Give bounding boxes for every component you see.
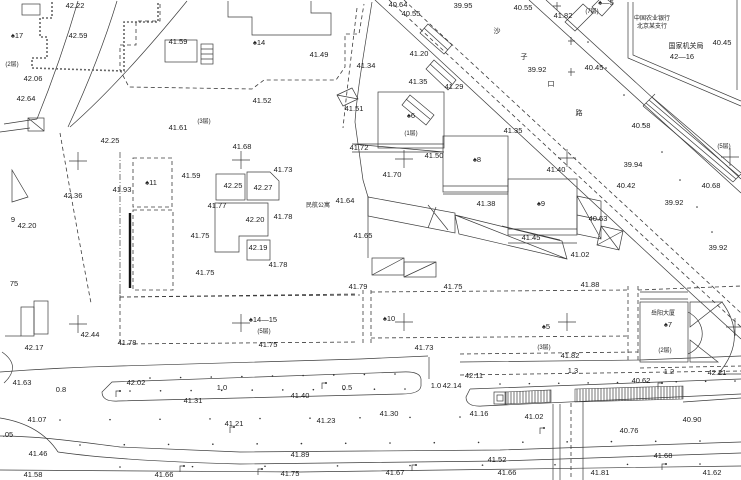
point-symbol [566, 441, 568, 443]
elevation-label: 41.38 [477, 199, 496, 208]
lamp-icon [325, 382, 327, 384]
tower-building [640, 292, 741, 374]
elevation-label: 41.63 [13, 378, 32, 387]
elevation-label: 0.8 [56, 385, 66, 394]
point-symbol [256, 443, 258, 445]
survey-map-page: 42.2240.6440.5539.9540.5541.82♠—5(7层)中国农… [0, 0, 741, 480]
point-symbol [522, 441, 524, 443]
point-symbol [168, 444, 170, 446]
elevation-label: 41.75 [191, 231, 210, 240]
lamp-icon [322, 383, 326, 389]
elevation-label: 41.82 [554, 11, 573, 20]
elevation-label: 41.70 [383, 170, 402, 179]
elevation-label: 42.02 [127, 378, 146, 387]
point-symbol [123, 444, 125, 446]
elevation-label: 41.31 [184, 396, 203, 405]
point-symbol [160, 390, 162, 392]
elevation-label: 42.06 [24, 74, 43, 83]
elevation-label: ♠9 [537, 199, 545, 208]
point-symbol [409, 465, 411, 467]
elevation-label: 40.42 [617, 181, 636, 190]
elevation-label: 42.27 [254, 183, 273, 192]
map-text-label: (1层) [404, 130, 417, 137]
elevation-label: 41.67 [386, 468, 405, 477]
map-text-label: 岳阳大厦 [651, 309, 675, 317]
elevation-label: ♠5 [542, 322, 550, 331]
elevation-label: 39.94 [624, 160, 643, 169]
lamp-icon [661, 382, 663, 384]
elevation-label: 40.68 [702, 181, 721, 190]
point-symbol [675, 381, 677, 383]
point-symbol [180, 377, 182, 379]
elevation-label: 41.50 [425, 151, 444, 160]
point-symbol [587, 382, 589, 384]
elevation-labels: 42.2240.6440.5539.9540.5541.82♠—5(7层)中国农… [3, 0, 732, 479]
point-symbols [59, 41, 736, 468]
elevation-label: 41.89 [291, 450, 310, 459]
point-symbol [313, 389, 315, 391]
elevation-label: ♠10 [383, 314, 395, 323]
grid-cross [395, 313, 413, 331]
elevation-label: 41.40 [547, 165, 566, 174]
elevation-label: 42.36 [64, 191, 83, 200]
point-symbol [190, 390, 192, 392]
grid-cross [395, 150, 413, 168]
elevation-label: 41.73 [274, 165, 293, 174]
point-symbol [209, 418, 211, 420]
map-text-label: (5层) [257, 328, 270, 335]
elevation-label: 42—16 [670, 52, 694, 61]
point-symbol [149, 377, 151, 379]
lamp-icon [543, 427, 545, 429]
point-symbol [699, 463, 701, 465]
elevation-label: 1.0 [431, 381, 441, 390]
bottom-compounds [120, 286, 741, 368]
elevation-label: 40.55 [402, 9, 421, 18]
map-text-label: (7层) [585, 8, 598, 15]
elevation-label: 42.14 [443, 381, 462, 390]
point-symbol [119, 466, 121, 468]
elevation-label: 1.2 [664, 367, 674, 376]
point-symbol [705, 381, 707, 383]
elevation-label: ♠14—15 [249, 315, 277, 324]
point-symbol [433, 442, 435, 444]
point-symbol [696, 206, 698, 208]
point-symbol [159, 418, 161, 420]
lamp-icon [116, 391, 120, 397]
elevation-label: 41.75 [196, 268, 215, 277]
elevation-label: 41.21 [225, 419, 244, 428]
elevation-label: 41.72 [350, 143, 369, 152]
point-symbol [251, 389, 253, 391]
elevation-label: 39.92 [665, 198, 684, 207]
point-symbol [711, 231, 713, 233]
elevation-label: 41.30 [380, 409, 399, 418]
elevation-label: 40.58 [632, 121, 651, 130]
elevation-label: 42.59 [69, 31, 88, 40]
elevation-label: 1.3 [568, 366, 578, 375]
lamp-icon [119, 390, 121, 392]
point-symbol [345, 442, 347, 444]
elevation-label: 41.66 [498, 468, 517, 477]
map-text-label: 沙 [494, 27, 501, 35]
map-text-label: 口 [548, 80, 555, 88]
elevation-label: 41.51 [345, 104, 364, 113]
point-symbol [734, 380, 736, 382]
point-symbol [272, 375, 274, 377]
point-symbol [301, 443, 303, 445]
elevation-label: 42.25 [101, 136, 120, 145]
point-symbol [554, 464, 556, 466]
elevation-label: 41.78 [118, 338, 137, 347]
point-symbol [679, 179, 681, 181]
grid-cross [558, 313, 576, 331]
point-symbol [623, 94, 625, 96]
point-symbol [459, 416, 461, 418]
map-text-label: 路 [576, 108, 583, 117]
point-symbol [109, 419, 111, 421]
point-symbol [241, 376, 243, 378]
map-text-label: 民航公寓 [306, 201, 330, 209]
grid-cross [69, 152, 87, 170]
point-symbol [558, 382, 560, 384]
point-symbol [617, 382, 619, 384]
elevation-label: 41.68 [654, 451, 673, 460]
point-symbol [302, 375, 304, 377]
elevation-label: 9 [11, 215, 15, 224]
elevation-label: 42.20 [246, 215, 265, 224]
map-text-label: 中国农业银行 [634, 14, 670, 22]
bottom-roads [0, 301, 741, 480]
elevation-label: 42.64 [17, 94, 36, 103]
point-symbol [264, 465, 266, 467]
lamp-icon [540, 428, 544, 434]
elevation-label: 41.52 [253, 96, 272, 105]
elevation-label: 42.25 [224, 181, 243, 190]
elevation-label: 41.66 [155, 470, 174, 479]
point-symbol [661, 151, 663, 153]
elevation-label: 0.5 [342, 383, 352, 392]
elevation-label: 41.61 [169, 123, 188, 132]
elevation-label: 41.73 [415, 343, 434, 352]
elevation-label: 42.44 [81, 330, 100, 339]
elevation-label: ♠—5 [598, 0, 614, 7]
elevation-label: 41.16 [470, 409, 489, 418]
elevation-label: 41.58 [24, 470, 43, 479]
elevation-label: 39.92 [709, 243, 728, 252]
elevation-label: 41.02 [525, 412, 544, 421]
elevation-label: 42.17 [25, 343, 44, 352]
elevation-label: 41.35 [504, 126, 523, 135]
elevation-label: 42.22 [66, 1, 85, 10]
point-symbol [655, 440, 657, 442]
elevation-label: 39.95 [454, 1, 473, 10]
point-symbol [389, 442, 391, 444]
point-symbol [611, 441, 613, 443]
map-text-label: (3层) [537, 344, 550, 351]
elevation-label: 41.78 [269, 260, 288, 269]
point-symbol [259, 418, 261, 420]
point-symbol [404, 388, 406, 390]
topleft-road-lines [0, 1, 187, 303]
elevation-label: ♠11 [145, 178, 157, 187]
elevation-label: 40.45 [585, 63, 604, 72]
point-symbol [359, 417, 361, 419]
elevation-label: 40.63 [589, 214, 608, 223]
point-symbol [394, 373, 396, 375]
elevation-label: 41.88 [581, 280, 600, 289]
map-text-label: 北京某支行 [637, 22, 667, 30]
elevation-label: 41.45 [522, 233, 541, 242]
elevation-label: 41.46 [29, 449, 48, 458]
elevation-label: 39.92 [528, 65, 547, 74]
lamp-icon [261, 468, 263, 470]
elevation-label: 40.55 [514, 3, 533, 12]
point-symbol [337, 465, 339, 467]
point-symbol [374, 388, 376, 390]
elevation-label: 40.62 [632, 376, 651, 385]
elevation-label: ♠14 [253, 38, 265, 47]
elevation-label: 41.62 [703, 468, 722, 477]
topleft-compound [120, 1, 364, 89]
grid-cross [232, 151, 250, 169]
elevation-label: 42.20 [18, 221, 37, 230]
map-text-label: 子 [521, 53, 528, 61]
elevation-label: 42.19 [249, 243, 268, 252]
elevation-label: 41.29 [445, 82, 464, 91]
point-symbol [364, 374, 366, 376]
point-symbol [499, 383, 501, 385]
elevation-label: 41.20 [410, 49, 429, 58]
map-text-label: (2层) [658, 347, 671, 354]
elevation-label: ♠8 [473, 155, 481, 164]
elevation-label: .05 [3, 430, 13, 439]
grid-cross [232, 314, 250, 332]
elevation-label: 75 [10, 279, 18, 288]
elevation-label: 41.78 [274, 212, 293, 221]
point-symbol [212, 443, 214, 445]
elevation-label: 41.75 [259, 340, 278, 349]
lamp-icon [665, 463, 667, 465]
elevation-label: ♠6 [407, 111, 415, 120]
elevation-label: 42.11 [465, 371, 483, 380]
map-text-label: (2层) [5, 61, 18, 68]
point-symbol [210, 376, 212, 378]
grid-cross [726, 318, 741, 336]
point-symbol [478, 442, 480, 444]
elevation-label: 41.77 [208, 201, 227, 210]
map-text-label: 国家机关局 [669, 41, 704, 50]
elevation-label: 41.59 [182, 171, 201, 180]
point-symbol [79, 444, 81, 446]
elevation-label: 42.21 [708, 368, 727, 377]
map-text-label: (5层) [717, 143, 730, 150]
elevation-label: ♠7 [664, 320, 672, 329]
elevation-label: 41.65 [354, 231, 373, 240]
elevation-label: 41.59 [169, 37, 188, 46]
map-text-label: (3层) [197, 118, 210, 125]
elevation-label: 41.49 [310, 50, 329, 59]
point-symbol [282, 389, 284, 391]
point-symbol [333, 374, 335, 376]
lamp-icon [183, 465, 185, 467]
elevation-label: 41.34 [357, 61, 376, 70]
elevation-label: 41.81 [591, 468, 610, 477]
elevation-label: 40.90 [683, 415, 702, 424]
elevation-label: 41.68 [233, 142, 252, 151]
elevation-label: 41.40 [291, 391, 310, 400]
point-symbol [627, 464, 629, 466]
elevation-label: 41.79 [349, 282, 368, 291]
elevation-label: 41.52 [488, 455, 507, 464]
elevation-label: 41.23 [317, 416, 336, 425]
elevation-label: 41.75 [281, 469, 300, 478]
point-symbol [409, 417, 411, 419]
point-symbol [129, 390, 131, 392]
elevation-label: 41.07 [28, 415, 47, 424]
point-symbol [587, 41, 589, 43]
elevation-label: 41.02 [571, 250, 590, 259]
elevation-label: 41.35 [409, 77, 428, 86]
elevation-label: 41.64 [336, 196, 355, 205]
elevation-label: ♠17 [11, 31, 23, 40]
elevation-label: 41.75 [444, 282, 463, 291]
point-symbol [529, 383, 531, 385]
lamp-icon [415, 464, 417, 466]
elevation-label: 1.0 [217, 383, 227, 392]
survey-map-canvas: 42.2240.6440.5539.9540.5541.82♠—5(7层)中国农… [0, 0, 741, 480]
point-symbol [59, 419, 61, 421]
point-symbol [605, 67, 607, 69]
elevation-label: 40.76 [620, 426, 639, 435]
point-symbol [699, 440, 701, 442]
elevation-label: 40.45 [713, 38, 732, 47]
elevation-label: 41.93 [113, 185, 132, 194]
point-symbol [192, 466, 194, 468]
elevation-label: 40.64 [389, 0, 408, 9]
elevation-label: 41.82 [561, 351, 580, 360]
point-symbol [309, 417, 311, 419]
point-symbol [482, 464, 484, 466]
